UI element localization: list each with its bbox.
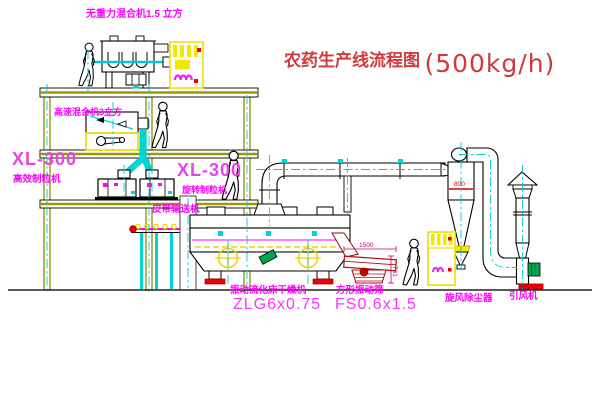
high-speed-mixer <box>86 112 148 150</box>
diagram-title: 农药生产线流程图 (500kg/h) <box>284 46 555 78</box>
label-cyclone: 旋风除尘器 <box>445 294 493 304</box>
label-gravity-mixer: 无重力混合机1.5 立方 <box>86 10 183 20</box>
screen-dim-height: 741 <box>391 266 398 277</box>
fluid-bed-dryer <box>190 204 350 284</box>
granulator-left <box>95 170 139 201</box>
cyclone-dimension: 800 <box>454 181 465 188</box>
person-figure <box>152 102 168 147</box>
cad-flow-diagram: 800 <box>0 0 600 403</box>
person-figure <box>403 239 420 285</box>
control-cabinet-top <box>170 42 203 88</box>
title-text: 农药生产线流程图 <box>284 51 420 70</box>
label-high-speed-mixer: 高速混合机3立方 <box>54 108 122 117</box>
label-dryer-name: 振动流化床干燥机 <box>230 286 306 296</box>
label-belt-conveyor: 皮带输送机 <box>152 205 200 215</box>
title-capacity: (500kg/h) <box>424 49 555 78</box>
induced-draft-fan <box>517 258 544 289</box>
label-screen-model: FS0.6x1.5 <box>335 297 417 313</box>
label-screen-name: 方形振动筛 <box>336 286 384 296</box>
control-cabinet-right <box>428 232 455 285</box>
zero-gravity-mixer <box>85 36 170 89</box>
label-granulator-right-model: XL-300 <box>177 161 242 179</box>
label-granulator-left-model: XL-300 <box>12 150 77 168</box>
person-figure <box>79 43 94 86</box>
label-granulator-right-name: 旋转制粒机 <box>182 186 227 195</box>
screen-dim-length: 1500 <box>359 242 374 249</box>
label-granulator-left-name: 高效制粒机 <box>13 175 61 185</box>
exhaust-duct <box>259 159 453 212</box>
label-dryer-model: ZLG6x0.75 <box>233 297 321 313</box>
granulator-right <box>137 170 178 201</box>
label-fan: 引风机 <box>509 292 538 302</box>
